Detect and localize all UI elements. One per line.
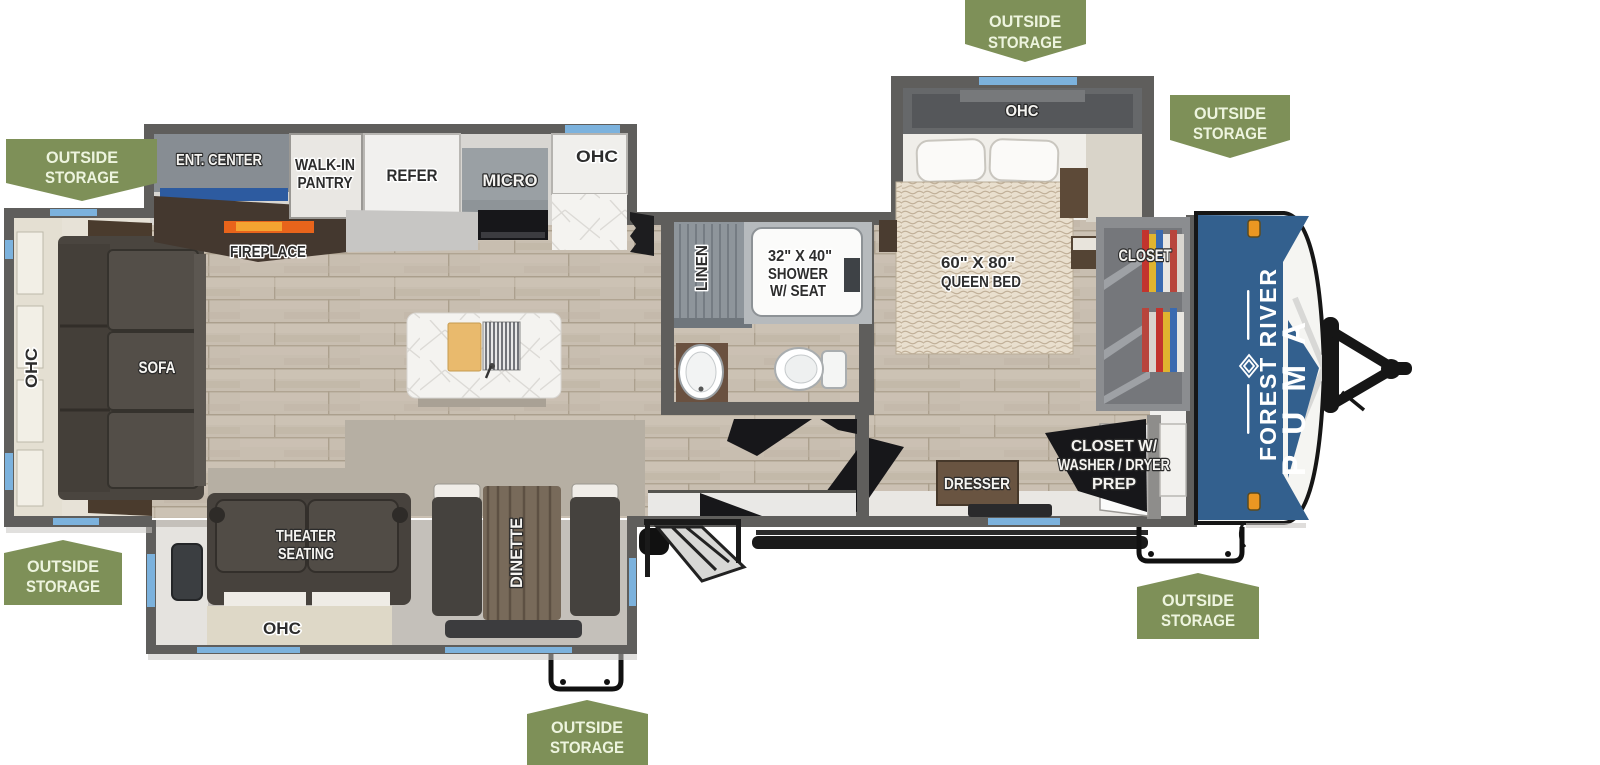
svg-text:ENT. CENTER: ENT. CENTER [176, 152, 262, 169]
svg-text:QUEEN BED: QUEEN BED [941, 274, 1021, 291]
svg-text:MICRO: MICRO [483, 172, 538, 190]
svg-text:WASHER / DRYER: WASHER / DRYER [1058, 457, 1170, 474]
svg-text:60" X 80": 60" X 80" [941, 255, 1015, 272]
svg-text:OUTSIDE: OUTSIDE [989, 12, 1061, 31]
svg-text:SHOWER: SHOWER [768, 266, 828, 283]
svg-text:SOFA: SOFA [139, 359, 176, 377]
svg-text:W/ SEAT: W/ SEAT [770, 283, 826, 300]
svg-text:CLOSET: CLOSET [1119, 247, 1172, 265]
svg-text:32" X 40": 32" X 40" [768, 248, 832, 265]
svg-text:OUTSIDE: OUTSIDE [1194, 104, 1266, 123]
svg-text:OUTSIDE: OUTSIDE [27, 557, 99, 576]
svg-text:OUTSIDE: OUTSIDE [1162, 591, 1234, 610]
svg-text:CLOSET W/: CLOSET W/ [1071, 438, 1158, 455]
svg-text:LINEN: LINEN [694, 245, 711, 291]
svg-text:STORAGE: STORAGE [550, 738, 624, 757]
svg-text:OHC: OHC [1006, 103, 1039, 120]
svg-text:OHC: OHC [23, 348, 41, 388]
svg-text:PANTRY: PANTRY [298, 175, 353, 192]
svg-text:STORAGE: STORAGE [26, 577, 100, 596]
svg-text:STORAGE: STORAGE [1161, 611, 1235, 630]
svg-text:WALK-IN: WALK-IN [295, 157, 355, 174]
svg-text:OUTSIDE: OUTSIDE [551, 718, 623, 737]
svg-text:PREP: PREP [1092, 476, 1136, 493]
svg-text:STORAGE: STORAGE [988, 33, 1062, 52]
svg-text:STORAGE: STORAGE [45, 168, 119, 187]
svg-text:SEATING: SEATING [278, 546, 334, 563]
svg-text:FIREPLACE: FIREPLACE [230, 244, 306, 261]
svg-text:DINETTE: DINETTE [508, 518, 526, 588]
svg-text:OHC: OHC [576, 148, 618, 166]
svg-text:OHC: OHC [263, 620, 301, 638]
svg-text:DRESSER: DRESSER [944, 476, 1010, 493]
svg-text:PUMA: PUMA [1276, 302, 1312, 476]
svg-text:STORAGE: STORAGE [1193, 124, 1267, 143]
svg-text:THEATER: THEATER [276, 528, 336, 545]
svg-text:REFER: REFER [387, 167, 438, 185]
svg-text:OUTSIDE: OUTSIDE [46, 148, 118, 167]
